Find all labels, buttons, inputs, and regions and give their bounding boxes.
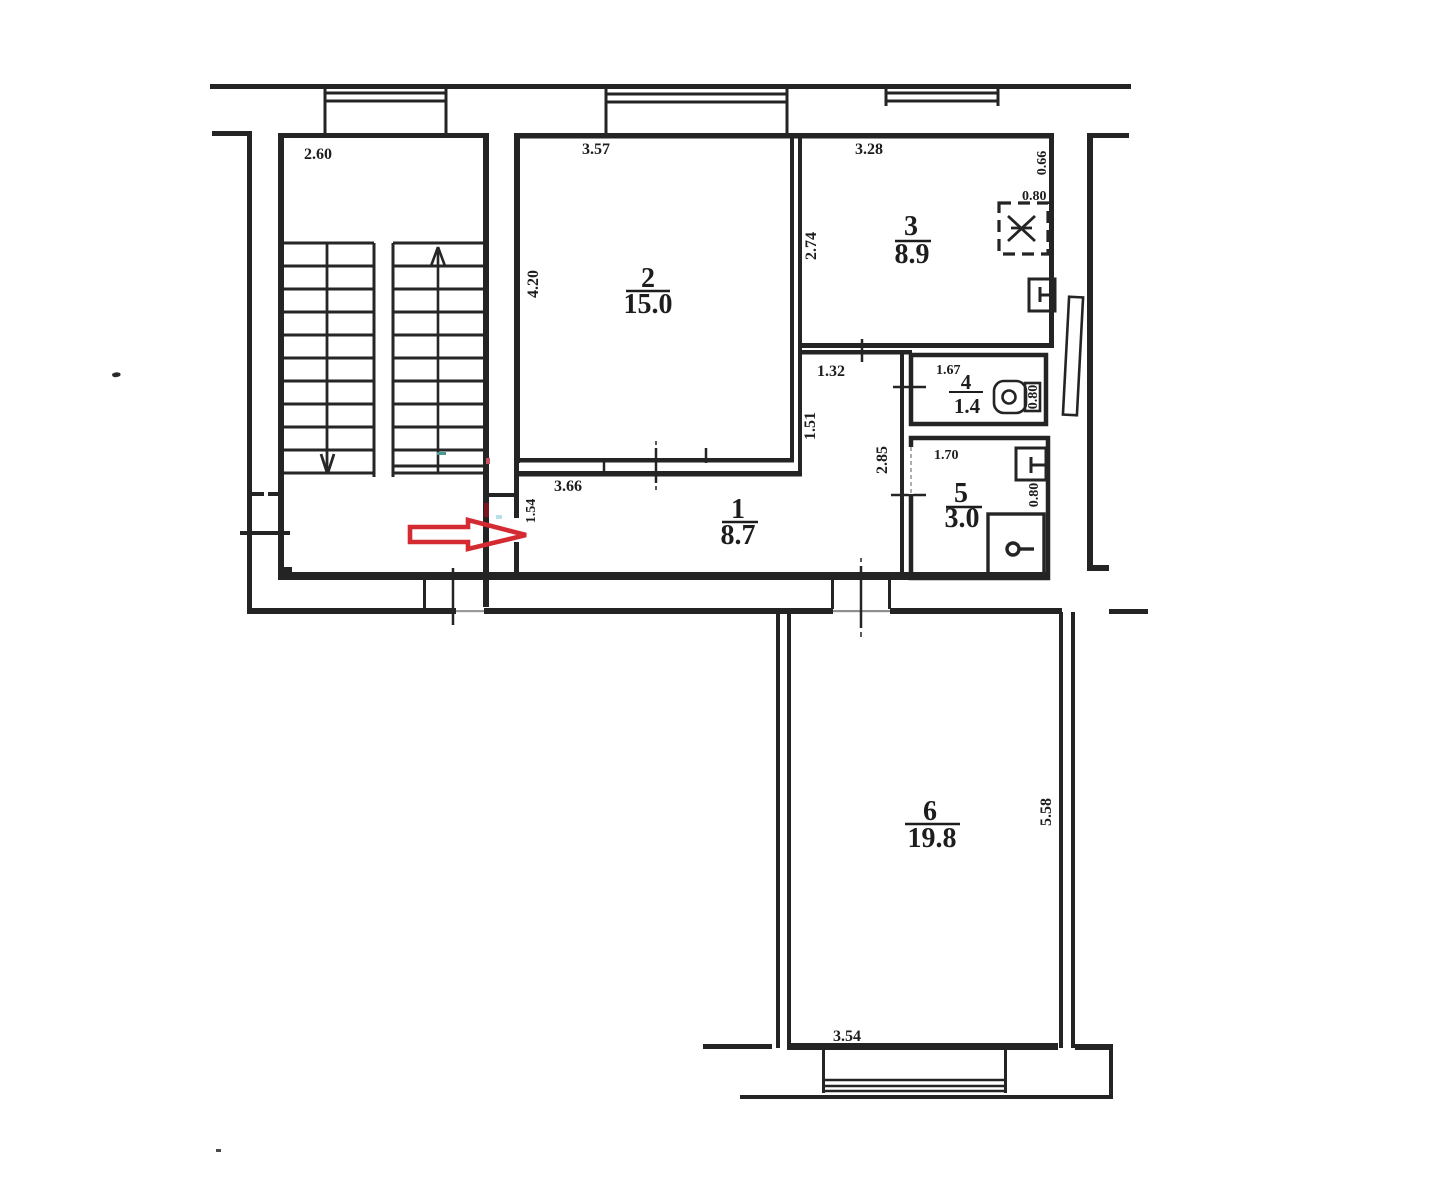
svg-text:1.67: 1.67 xyxy=(936,363,961,378)
svg-text:1.70: 1.70 xyxy=(934,448,959,463)
svg-text:2.85: 2.85 xyxy=(874,446,891,474)
svg-text:0.80: 0.80 xyxy=(1026,385,1041,410)
svg-text:8.9: 8.9 xyxy=(895,239,930,270)
svg-text:1.4: 1.4 xyxy=(954,394,981,418)
svg-text:5.58: 5.58 xyxy=(1038,798,1055,826)
svg-text:3.66: 3.66 xyxy=(554,478,582,495)
svg-text:4.20: 4.20 xyxy=(525,270,542,298)
svg-text:3.54: 3.54 xyxy=(833,1028,861,1045)
svg-text:0.66: 0.66 xyxy=(1035,151,1050,176)
svg-text:1.32: 1.32 xyxy=(817,363,845,380)
svg-text:0.80: 0.80 xyxy=(1022,189,1047,204)
svg-text:1.51: 1.51 xyxy=(802,412,819,440)
svg-text:2.60: 2.60 xyxy=(304,146,332,163)
svg-text:3.28: 3.28 xyxy=(855,141,883,158)
svg-text:0.80: 0.80 xyxy=(1027,483,1042,508)
svg-text:3: 3 xyxy=(904,211,918,242)
svg-text:15.0: 15.0 xyxy=(624,289,673,320)
svg-text:3.57: 3.57 xyxy=(582,141,610,158)
svg-text:19.8: 19.8 xyxy=(908,823,957,854)
svg-text:3.0: 3.0 xyxy=(945,503,980,534)
svg-text:8.7: 8.7 xyxy=(721,520,756,551)
svg-text:2.74: 2.74 xyxy=(803,232,820,260)
svg-text:1.54: 1.54 xyxy=(524,499,539,524)
svg-text:4: 4 xyxy=(961,370,972,394)
